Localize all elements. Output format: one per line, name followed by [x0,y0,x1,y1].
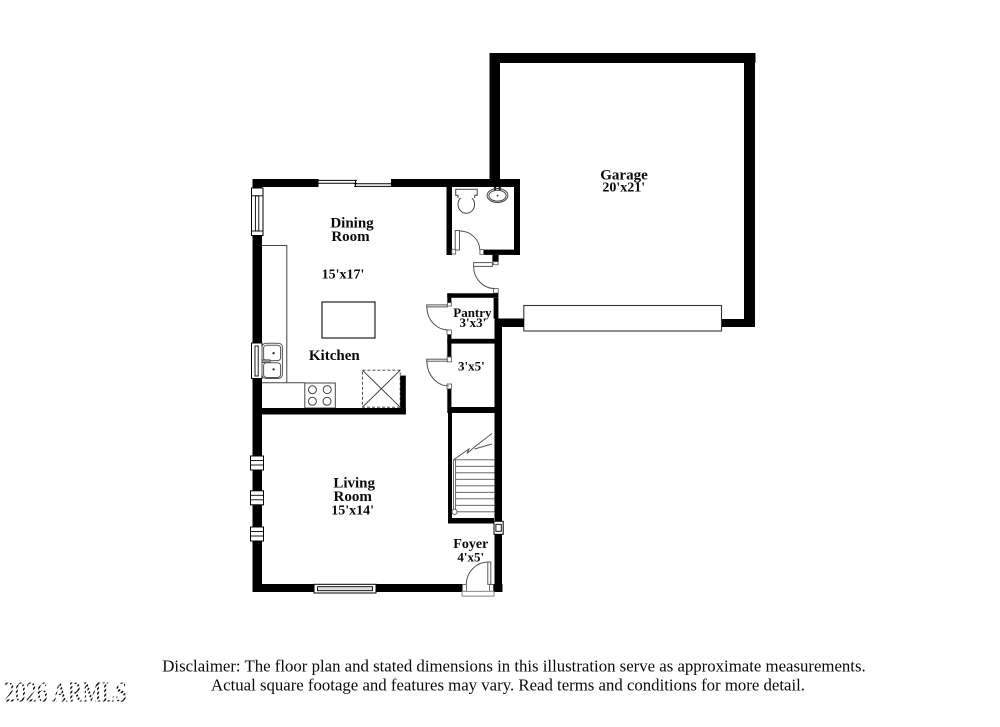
svg-text:Actual square footage and feat: Actual square footage and features may v… [211,676,805,695]
svg-text:15'x17': 15'x17' [322,268,365,283]
svg-text:4'x5': 4'x5' [457,550,484,565]
svg-text:Kitchen: Kitchen [309,348,360,364]
svg-text:15'x14': 15'x14' [331,504,374,519]
svg-text:Disclaimer: The floor plan and: Disclaimer: The floor plan and stated di… [162,657,865,676]
svg-text:20'x21': 20'x21' [602,181,645,196]
svg-text:3'x5': 3'x5' [458,359,485,374]
svg-text:3'x3': 3'x3' [460,315,487,330]
svg-text:Room: Room [331,229,370,245]
